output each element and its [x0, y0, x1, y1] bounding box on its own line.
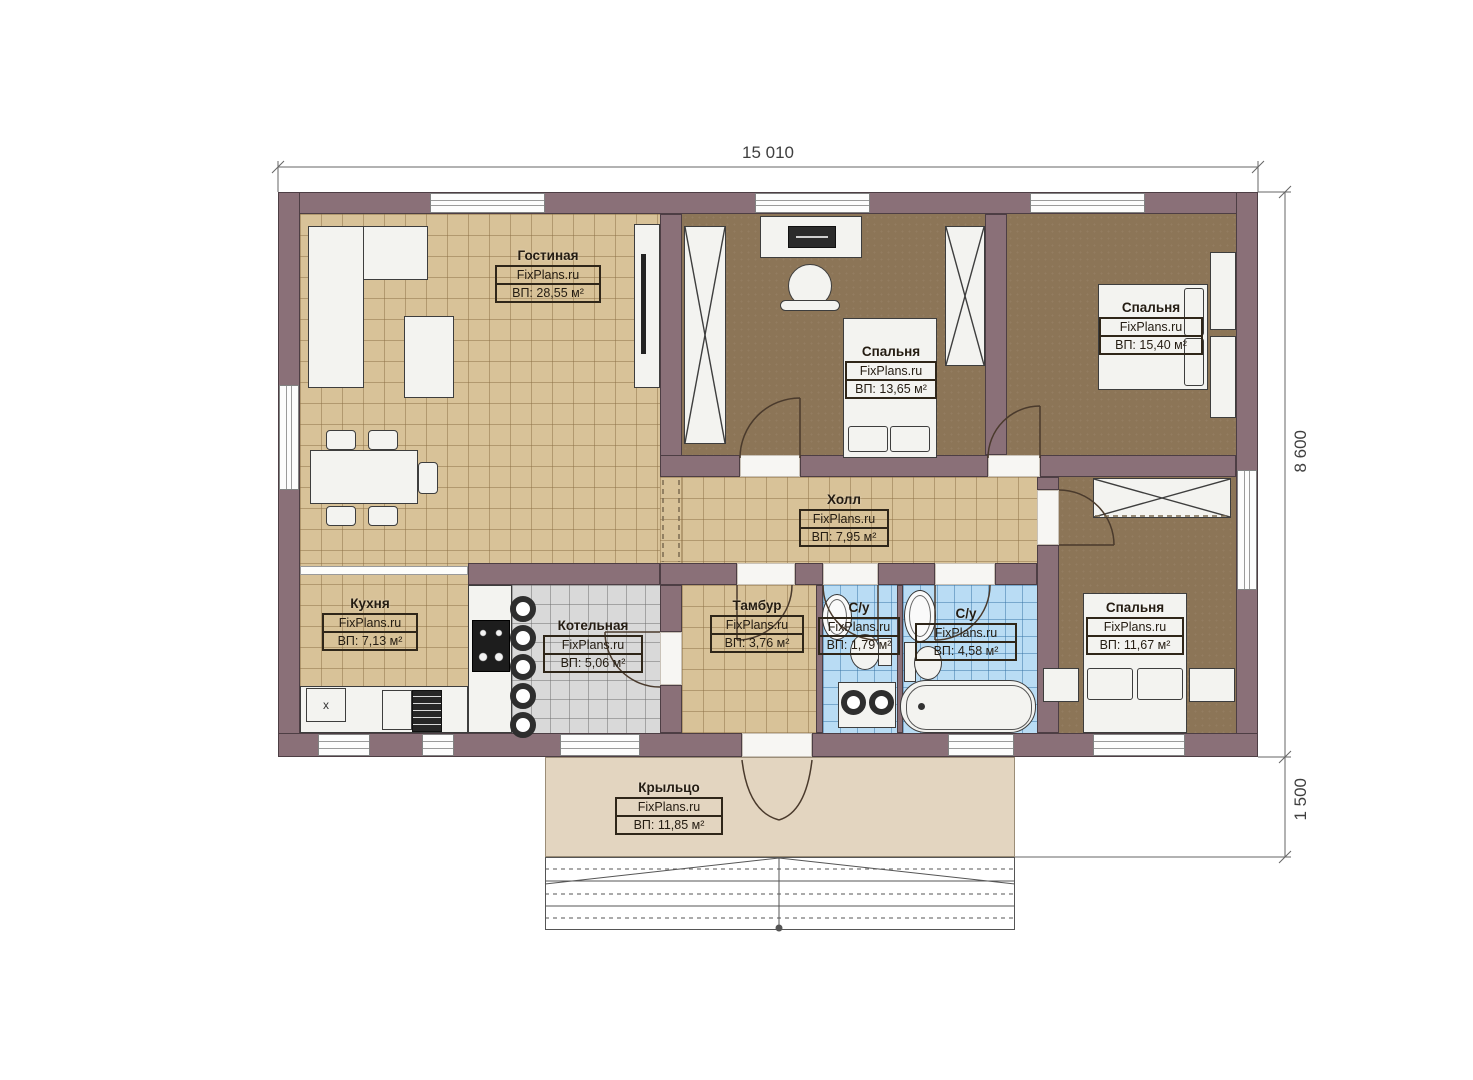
- floor-plan-page: { "watermark": "FixPlans.ru", "dimension…: [0, 0, 1473, 1080]
- watermark-text: FixPlans.ru: [324, 615, 416, 631]
- room-area: ВП: 11,67 м²: [1088, 635, 1182, 653]
- watermark-text: FixPlans.ru: [820, 619, 898, 635]
- room-name: С/у: [955, 606, 976, 621]
- dimension-ticks-right: [1279, 186, 1291, 763]
- wardrobe-bedroom3: [1093, 478, 1231, 518]
- room-name: Крыльцо: [638, 780, 699, 795]
- dimension-line-porch: [1015, 757, 1291, 863]
- wall-boiler-vestibule-b: [660, 685, 682, 733]
- door-opening-wc-large: [935, 563, 995, 585]
- nightstand: [1210, 252, 1236, 330]
- wardrobe-bedroom1-right: [945, 226, 985, 366]
- watermark-box: FixPlans.ru ВП: 11,67 м²: [1086, 617, 1184, 655]
- dining-chair: [368, 430, 398, 450]
- desk-chair-back: [780, 300, 840, 311]
- dimension-line-top: [278, 161, 1258, 192]
- printer: [788, 226, 836, 248]
- kitchen-appliance-box: x: [306, 688, 346, 722]
- window-boiler-bottom: [560, 734, 640, 756]
- dining-chair: [326, 506, 356, 526]
- room-label-porch: Крыльцо FixPlans.ru ВП: 11,85 м²: [617, 780, 721, 835]
- watermark-text: FixPlans.ru: [801, 511, 887, 527]
- watermark-box: FixPlans.ru ВП: 3,76 м²: [710, 615, 804, 653]
- wall-bedrooms-hall-b: [800, 455, 988, 477]
- room-area: ВП: 13,65 м²: [847, 379, 935, 397]
- wall-outer-bottom-right: [812, 733, 1258, 757]
- nightstand: [1043, 668, 1079, 702]
- room-area: ВП: 5,06 м²: [545, 653, 641, 671]
- room-label-living: Гостиная FixPlans.ru ВП: 28,55 м²: [497, 248, 599, 303]
- pillow: [1137, 668, 1183, 700]
- room-area: ВП: 11,85 м²: [617, 815, 721, 833]
- room-area: ВП: 28,55 м²: [497, 283, 599, 301]
- wall-boiler-vestibule-a: [660, 585, 682, 632]
- door-opening-bedroom3: [1037, 490, 1059, 545]
- room-label-bedroom2: Спальня FixPlans.ru ВП: 15,40 м²: [1101, 300, 1201, 355]
- boiler-unit: [510, 683, 536, 709]
- room-label-kitchen: Кухня FixPlans.ru ВП: 7,13 м²: [324, 596, 416, 651]
- watermark-text: FixPlans.ru: [1101, 319, 1201, 335]
- room-name: Холл: [827, 492, 861, 507]
- watermark-text: FixPlans.ru: [847, 363, 935, 379]
- window-kitchen-bottom-1: [318, 734, 370, 756]
- room-label-vestibule: Тамбур FixPlans.ru ВП: 3,76 м²: [712, 598, 802, 653]
- room-label-wc-large: С/у FixPlans.ru ВП: 4,58 м²: [917, 606, 1015, 661]
- window-bedroom3-right: [1237, 470, 1257, 590]
- kitchen-living-divider: [300, 566, 468, 575]
- door-opening-entrance: [742, 733, 812, 757]
- boiler-unit: [510, 654, 536, 680]
- wall-kitchen-boiler-top: [468, 563, 660, 585]
- door-opening-bedroom1: [740, 455, 800, 477]
- wardrobe-bedroom1-left: [684, 226, 726, 444]
- watermark-box: FixPlans.ru ВП: 28,55 м²: [495, 265, 601, 303]
- pillow: [890, 426, 930, 452]
- sofa-side-section: [308, 226, 364, 388]
- room-area: ВП: 4,58 м²: [917, 641, 1015, 659]
- watermark-box: FixPlans.ru ВП: 7,95 м²: [799, 509, 889, 547]
- watermark-box: FixPlans.ru ВП: 1,79 м²: [818, 617, 900, 655]
- room-name: Котельная: [558, 618, 629, 633]
- room-label-boiler: Котельная FixPlans.ru ВП: 5,06 м²: [545, 618, 641, 673]
- door-opening-bedroom2: [988, 455, 1040, 477]
- washing-machine: [869, 690, 894, 715]
- wall-bedrooms-hall-a: [660, 455, 740, 477]
- watermark-text: FixPlans.ru: [712, 617, 802, 633]
- window-kitchen-bottom-2: [422, 734, 454, 756]
- tv-stand: [634, 224, 660, 388]
- watermark-box: FixPlans.ru ВП: 11,85 м²: [615, 797, 723, 835]
- room-label-wc-small: С/у FixPlans.ru ВП: 1,79 м²: [820, 600, 898, 655]
- washing-machine: [841, 690, 866, 715]
- pillow: [1087, 668, 1133, 700]
- window-bedroom2-top: [1030, 193, 1145, 213]
- bathtub-inner: [906, 685, 1032, 730]
- pillow: [848, 426, 888, 452]
- kitchen-sink: [382, 690, 412, 730]
- wall-bedroom1-bedroom2: [985, 214, 1007, 455]
- door-opening-wc-small: [823, 563, 878, 585]
- wall-hall-south-d: [995, 563, 1037, 585]
- boiler-unit: [510, 596, 536, 622]
- dining-chair: [418, 462, 438, 494]
- dimension-height-label: 8 600: [1291, 430, 1311, 473]
- window-living-top: [430, 193, 545, 213]
- nightstand: [1189, 668, 1235, 702]
- wall-bedrooms-hall-c: [1040, 455, 1236, 477]
- room-label-bedroom3: Спальня FixPlans.ru ВП: 11,67 м²: [1088, 600, 1182, 655]
- watermark-text: FixPlans.ru: [497, 267, 599, 283]
- room-area: ВП: 3,76 м²: [712, 633, 802, 651]
- wall-living-bedroom1: [660, 214, 682, 477]
- room-name: Гостиная: [517, 248, 578, 263]
- wall-hall-south-c: [878, 563, 935, 585]
- room-label-bedroom1: Спальня FixPlans.ru ВП: 13,65 м²: [847, 344, 935, 399]
- boiler-unit: [510, 625, 536, 651]
- dimension-porch-label: 1 500: [1291, 778, 1311, 821]
- watermark-box: FixPlans.ru ВП: 5,06 м²: [543, 635, 643, 673]
- window-bedroom3-bottom: [1093, 734, 1185, 756]
- living-hall-passage-floor: [660, 477, 682, 563]
- wall-hall-south-b: [795, 563, 823, 585]
- porch-steps: [545, 857, 1015, 930]
- nightstand: [1210, 336, 1236, 418]
- room-name: Тамбур: [733, 598, 782, 613]
- wall-hall-south-a: [660, 563, 737, 585]
- room-name: Спальня: [862, 344, 920, 359]
- watermark-text: FixPlans.ru: [1088, 619, 1182, 635]
- kitchen-stove: [412, 690, 442, 732]
- dining-chair: [326, 430, 356, 450]
- dimension-width-label: 15 010: [698, 143, 838, 163]
- window-wc-large-bottom: [948, 734, 1014, 756]
- room-area: ВП: 7,95 м²: [801, 527, 887, 545]
- watermark-box: FixPlans.ru ВП: 4,58 м²: [915, 623, 1017, 661]
- watermark-box: FixPlans.ru ВП: 7,13 м²: [322, 613, 418, 651]
- room-name: Спальня: [1106, 600, 1164, 615]
- kitchen-hob: [472, 620, 510, 672]
- room-area: ВП: 7,13 м²: [324, 631, 416, 649]
- room-area: ВП: 15,40 м²: [1101, 335, 1201, 353]
- wall-bedroom3-left-b: [1037, 545, 1059, 733]
- door-opening-vestibule: [737, 563, 795, 585]
- room-label-hall: Холл FixPlans.ru ВП: 7,95 м²: [801, 492, 887, 547]
- dining-chair: [368, 506, 398, 526]
- room-name: Спальня: [1122, 300, 1180, 315]
- room-area: ВП: 1,79 м²: [820, 635, 898, 653]
- watermark-text: FixPlans.ru: [545, 637, 641, 653]
- room-name: С/у: [848, 600, 869, 615]
- window-bedroom1-top: [755, 193, 870, 213]
- window-living-left: [279, 385, 299, 490]
- coffee-table: [404, 316, 454, 398]
- door-opening-boiler: [660, 632, 682, 685]
- watermark-text: FixPlans.ru: [617, 799, 721, 815]
- watermark-box: FixPlans.ru ВП: 13,65 м²: [845, 361, 937, 399]
- watermark-box: FixPlans.ru ВП: 15,40 м²: [1099, 317, 1203, 355]
- tv-screen: [641, 254, 646, 354]
- dimension-line-right: [1258, 192, 1291, 757]
- room-name: Кухня: [350, 596, 389, 611]
- bathtub-drain: [918, 703, 925, 710]
- dining-table: [310, 450, 418, 504]
- boiler-unit: [510, 712, 536, 738]
- wall-bedroom3-left-a: [1037, 477, 1059, 490]
- watermark-text: FixPlans.ru: [917, 625, 1015, 641]
- kitchen-marker: x: [323, 698, 329, 712]
